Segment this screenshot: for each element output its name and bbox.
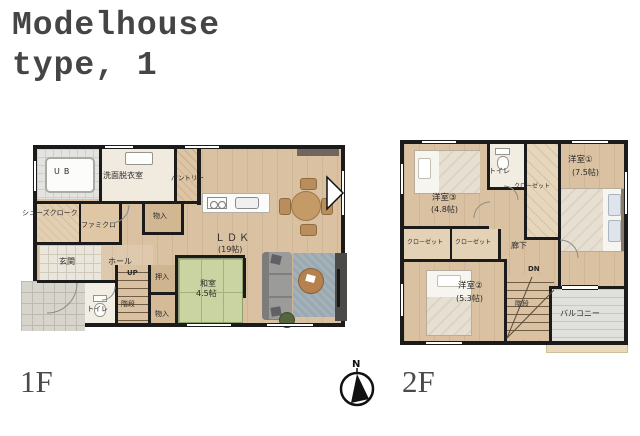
label-bedroom3-size: (4.8帖) [431, 205, 458, 214]
label-closet-a: クローゼット [407, 240, 443, 247]
compass-icon: N [334, 357, 380, 409]
bed-bedroom1 [560, 188, 624, 252]
floor2-plan: 洋室③ (4.8帖) トイレ クローゼット 洋室① (7.5帖) クローゼット … [400, 140, 628, 345]
kitchen-counter [202, 193, 270, 213]
room-toilet-2f [487, 144, 524, 187]
page-title: Modelhouse type, 1 [12, 6, 220, 87]
wall-segment [549, 289, 552, 341]
window [426, 341, 462, 345]
window [187, 323, 231, 327]
compass-north-label: N [352, 359, 360, 370]
wall-segment [115, 265, 118, 323]
label-bedroom1-size: (7.5帖) [572, 168, 599, 177]
title-line2: type, 1 [12, 46, 220, 86]
label-balcony: バルコニー [560, 309, 600, 318]
wall-segment [498, 229, 501, 262]
label-closet-main: クローゼット [514, 184, 550, 191]
label-up: UP [127, 269, 138, 277]
label-toilet-1f: トイレ [87, 305, 108, 313]
door-arc [474, 202, 490, 218]
wall-segment [504, 259, 507, 341]
label-storage-bottom: 物入 [155, 310, 169, 318]
kitchen-sink [235, 197, 259, 209]
wall-segment [119, 204, 122, 245]
label-washitsu-size: 4.5帖 [196, 289, 217, 298]
wall-segment [558, 144, 561, 289]
balcony-eaves [546, 344, 628, 353]
label-closet-b: クローゼット [455, 240, 491, 247]
window [422, 140, 456, 144]
wall-segment [243, 258, 246, 298]
dining-chair [321, 198, 333, 215]
sofa [262, 252, 292, 320]
label-pantry: パントリー [171, 175, 204, 182]
burner-icon [218, 201, 226, 209]
window [185, 145, 219, 149]
burner-icon [210, 201, 218, 209]
pillow [418, 158, 431, 179]
pillow [608, 220, 621, 242]
label-ub: UB [54, 167, 73, 176]
toilet-fixture-tank [93, 295, 107, 302]
label-bedroom2: 洋室② [458, 282, 483, 292]
window [105, 145, 133, 149]
label-shoes-cloak: シューズクローク [22, 209, 78, 217]
label-bedroom3: 洋室③ [432, 194, 457, 204]
washbasin [125, 152, 153, 165]
label-stairs-1f: 階段 [121, 300, 135, 308]
dining-chair [279, 198, 291, 215]
window [267, 323, 313, 327]
blanket [439, 151, 480, 193]
wall-segment [37, 242, 119, 245]
wall-segment [175, 255, 178, 323]
toilet-fixture-tank [495, 148, 510, 155]
title-line1: Modelhouse [12, 6, 220, 46]
dining-chair [300, 224, 317, 236]
label-hallway: 廊下 [511, 241, 527, 250]
blanket [561, 189, 603, 251]
wall-segment [181, 204, 184, 235]
room-toilet [85, 283, 115, 323]
wall-segment [524, 237, 561, 240]
label-genkan: 玄関 [59, 257, 75, 266]
floor1-plan: UB 洗面脱衣室 パントリー 物入 シューズクローク ファミクロ 玄関 ホール … [33, 145, 345, 327]
label-family-closet: ファミクロ [81, 221, 116, 229]
window [400, 284, 404, 316]
coffee-table [298, 268, 324, 294]
balcony-door [562, 285, 598, 290]
floor1-label: 1F [20, 364, 53, 400]
window [400, 164, 404, 194]
wall-segment [404, 226, 489, 229]
tv-board [335, 253, 347, 321]
entrance-porch [21, 281, 85, 331]
window [33, 161, 37, 191]
wall-segment [99, 149, 102, 201]
label-washroom: 洗面脱衣室 [103, 171, 143, 180]
bed-bedroom3 [414, 150, 480, 194]
wall-segment [151, 292, 175, 295]
label-dn: DN [528, 265, 540, 273]
label-toilet-2f: トイレ [489, 167, 510, 175]
dining-chair [300, 178, 317, 190]
label-hall: ホール [108, 257, 132, 266]
wall-segment [404, 259, 504, 262]
label-stairs-2f: 階段 [515, 300, 529, 308]
book [305, 274, 316, 283]
sofa-pillow [270, 254, 282, 265]
wall-segment [142, 232, 184, 235]
wall-segment [142, 204, 145, 235]
label-bedroom2-size: (5.3帖) [456, 294, 483, 303]
window [341, 171, 345, 215]
tv-screen [337, 269, 340, 307]
wall-segment [450, 229, 452, 259]
label-oshiire: 押入 [155, 273, 169, 281]
label-ldk-size: (19帖) [218, 245, 242, 254]
window [624, 172, 628, 214]
dining-table [291, 191, 321, 221]
wall-segment [175, 255, 245, 258]
window [572, 140, 608, 144]
label-washitsu: 和室 [200, 279, 216, 288]
label-bedroom1: 洋室① [568, 156, 593, 166]
room-storage-bottom [151, 295, 175, 323]
stove [207, 197, 227, 209]
wall-segment [37, 280, 118, 283]
floorplan-sheet: Modelhouse type, 1 [0, 0, 640, 436]
label-ldk: ＬＤＫ [215, 233, 251, 245]
pillow [608, 194, 621, 216]
floor2-label: 2F [402, 364, 435, 400]
wall-shelf [297, 149, 339, 156]
sofa-back [262, 252, 269, 320]
label-storage-top: 物入 [153, 212, 167, 220]
